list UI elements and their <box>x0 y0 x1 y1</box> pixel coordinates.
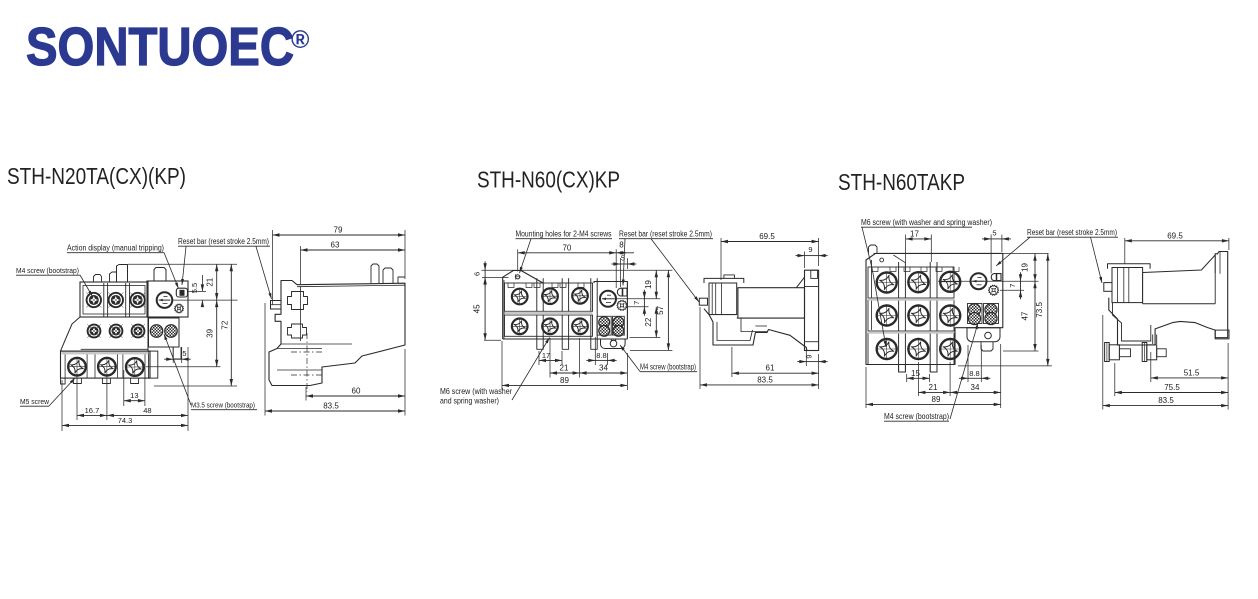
svg-text:9: 9 <box>805 354 814 358</box>
svg-text:7: 7 <box>1008 284 1017 288</box>
svg-text:Reset bar (reset stroke 2.5mm): Reset bar (reset stroke 2.5mm) <box>619 230 712 239</box>
svg-text:5: 5 <box>992 228 996 237</box>
svg-text:M4 screw (bootstrap): M4 screw (bootstrap) <box>884 412 949 421</box>
svg-text:60: 60 <box>352 387 361 396</box>
svg-text:48: 48 <box>143 406 151 415</box>
svg-text:21: 21 <box>560 364 569 373</box>
svg-text:72: 72 <box>220 320 229 329</box>
svg-text:M6 screw (with washer: M6 screw (with washer <box>440 387 512 396</box>
svg-text:57: 57 <box>656 305 665 314</box>
svg-text:®: ® <box>291 26 310 54</box>
svg-text:8.8: 8.8 <box>969 369 979 378</box>
svg-text:89: 89 <box>560 376 569 385</box>
svg-text:39: 39 <box>206 328 215 337</box>
svg-text:M6 screw (with washer and spri: M6 screw (with washer and spring washer) <box>861 218 992 227</box>
svg-text:83.5: 83.5 <box>323 402 339 411</box>
svg-text:69.5: 69.5 <box>759 232 775 241</box>
svg-text:Action display (manual trippin: Action display (manual tripping) <box>67 244 164 253</box>
svg-text:13: 13 <box>130 391 138 400</box>
svg-text:75.5: 75.5 <box>1164 383 1180 392</box>
svg-text:M5 screw: M5 screw <box>20 397 49 406</box>
svg-text:21: 21 <box>929 383 938 392</box>
svg-text:5.5: 5.5 <box>190 283 199 293</box>
svg-text:45: 45 <box>473 304 482 313</box>
svg-text:61: 61 <box>766 364 775 373</box>
svg-text:83.5: 83.5 <box>757 375 773 384</box>
svg-text:21: 21 <box>206 277 215 286</box>
svg-text:47: 47 <box>1021 311 1030 320</box>
svg-text:15: 15 <box>911 369 920 378</box>
svg-text:16.7: 16.7 <box>85 406 100 415</box>
svg-text:79: 79 <box>334 226 343 235</box>
svg-text:19: 19 <box>644 280 653 289</box>
svg-text:73.5: 73.5 <box>1035 302 1044 318</box>
svg-text:STH-N60TAKP: STH-N60TAKP <box>838 169 965 195</box>
svg-text:89: 89 <box>932 395 941 404</box>
svg-text:63: 63 <box>331 241 340 250</box>
svg-text:17: 17 <box>542 351 550 360</box>
svg-text:8: 8 <box>619 241 624 250</box>
svg-text:83.5: 83.5 <box>1158 396 1174 405</box>
svg-text:51.5: 51.5 <box>1184 368 1200 377</box>
svg-text:and spring washer): and spring washer) <box>440 397 499 406</box>
svg-text:STH-N60(CX)KP: STH-N60(CX)KP <box>477 167 620 193</box>
svg-text:Reset bar (reset stroke 2.5mm): Reset bar (reset stroke 2.5mm) <box>178 237 269 246</box>
svg-text:17: 17 <box>910 229 919 238</box>
svg-text:M4 screw (bootstrap): M4 screw (bootstrap) <box>16 266 79 275</box>
svg-text:STH-N20TA(CX)(KP): STH-N20TA(CX)(KP) <box>7 163 186 189</box>
svg-text:7: 7 <box>632 301 641 305</box>
svg-text:SONTUOEC: SONTUOEC <box>26 17 294 77</box>
svg-text:19: 19 <box>1021 263 1030 272</box>
svg-text:5: 5 <box>182 349 186 358</box>
svg-text:70: 70 <box>562 243 571 252</box>
svg-text:34: 34 <box>599 364 608 373</box>
svg-text:9: 9 <box>808 245 812 254</box>
svg-text:8.8: 8.8 <box>596 351 606 360</box>
svg-text:34: 34 <box>971 383 980 392</box>
svg-text:M4 screw (bootstrap): M4 screw (bootstrap) <box>640 363 696 372</box>
svg-text:69.5: 69.5 <box>1167 231 1183 240</box>
svg-text:Reset bar (reset stroke 2.5mm): Reset bar (reset stroke 2.5mm) <box>1027 228 1117 237</box>
svg-text:Mounting holes for 2-M4 screws: Mounting holes for 2-M4 screws <box>516 230 612 239</box>
svg-text:74.3: 74.3 <box>118 416 133 425</box>
svg-text:M3.5 screw (bootstrap): M3.5 screw (bootstrap) <box>191 401 255 410</box>
svg-text:22: 22 <box>644 317 653 326</box>
svg-text:6: 6 <box>473 272 482 276</box>
